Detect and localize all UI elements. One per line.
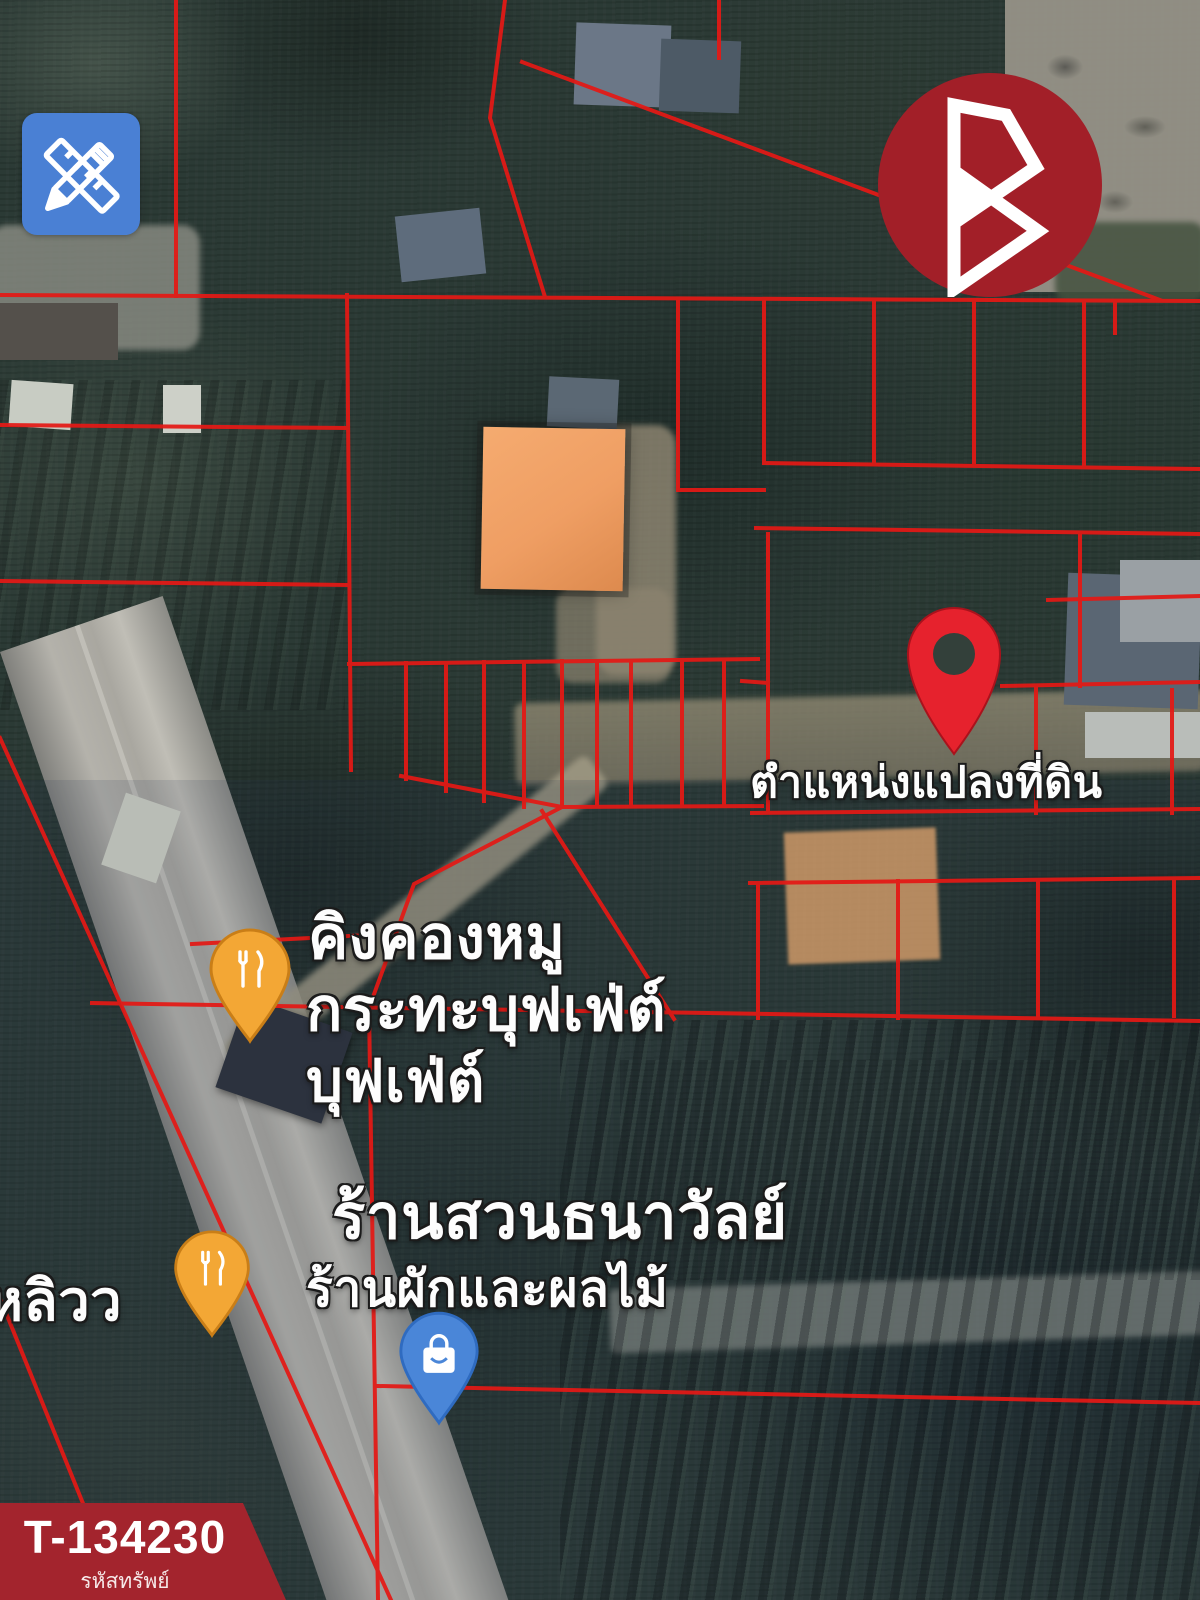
draw-measure-icon: [22, 113, 140, 235]
satellite-map[interactable]: ตำแหน่งแปลงที่ดิน คิงคองหมู กระทะบุฟเฟ่ต…: [0, 0, 1200, 1600]
brand-logo: [878, 73, 1102, 297]
restaurant-label-line3: บุฟเฟ่ต์: [306, 1034, 485, 1127]
restaurant-pin[interactable]: [205, 928, 295, 1046]
property-location-pin[interactable]: [898, 602, 1010, 760]
place-label-west: หลิวว: [0, 1256, 122, 1345]
property-code-badge: T-134230 รหัสทรัพย์: [0, 1503, 290, 1600]
shopping-pin[interactable]: [395, 1310, 483, 1428]
restaurant-pin-2[interactable]: [170, 1230, 254, 1340]
draw-measure-tool-button[interactable]: [22, 113, 140, 235]
shop-label-line2: ร้านผักและผลไม้: [306, 1250, 668, 1329]
property-code: T-134230: [0, 1510, 250, 1564]
property-code-caption: รหัสทรัพย์: [0, 1565, 250, 1598]
